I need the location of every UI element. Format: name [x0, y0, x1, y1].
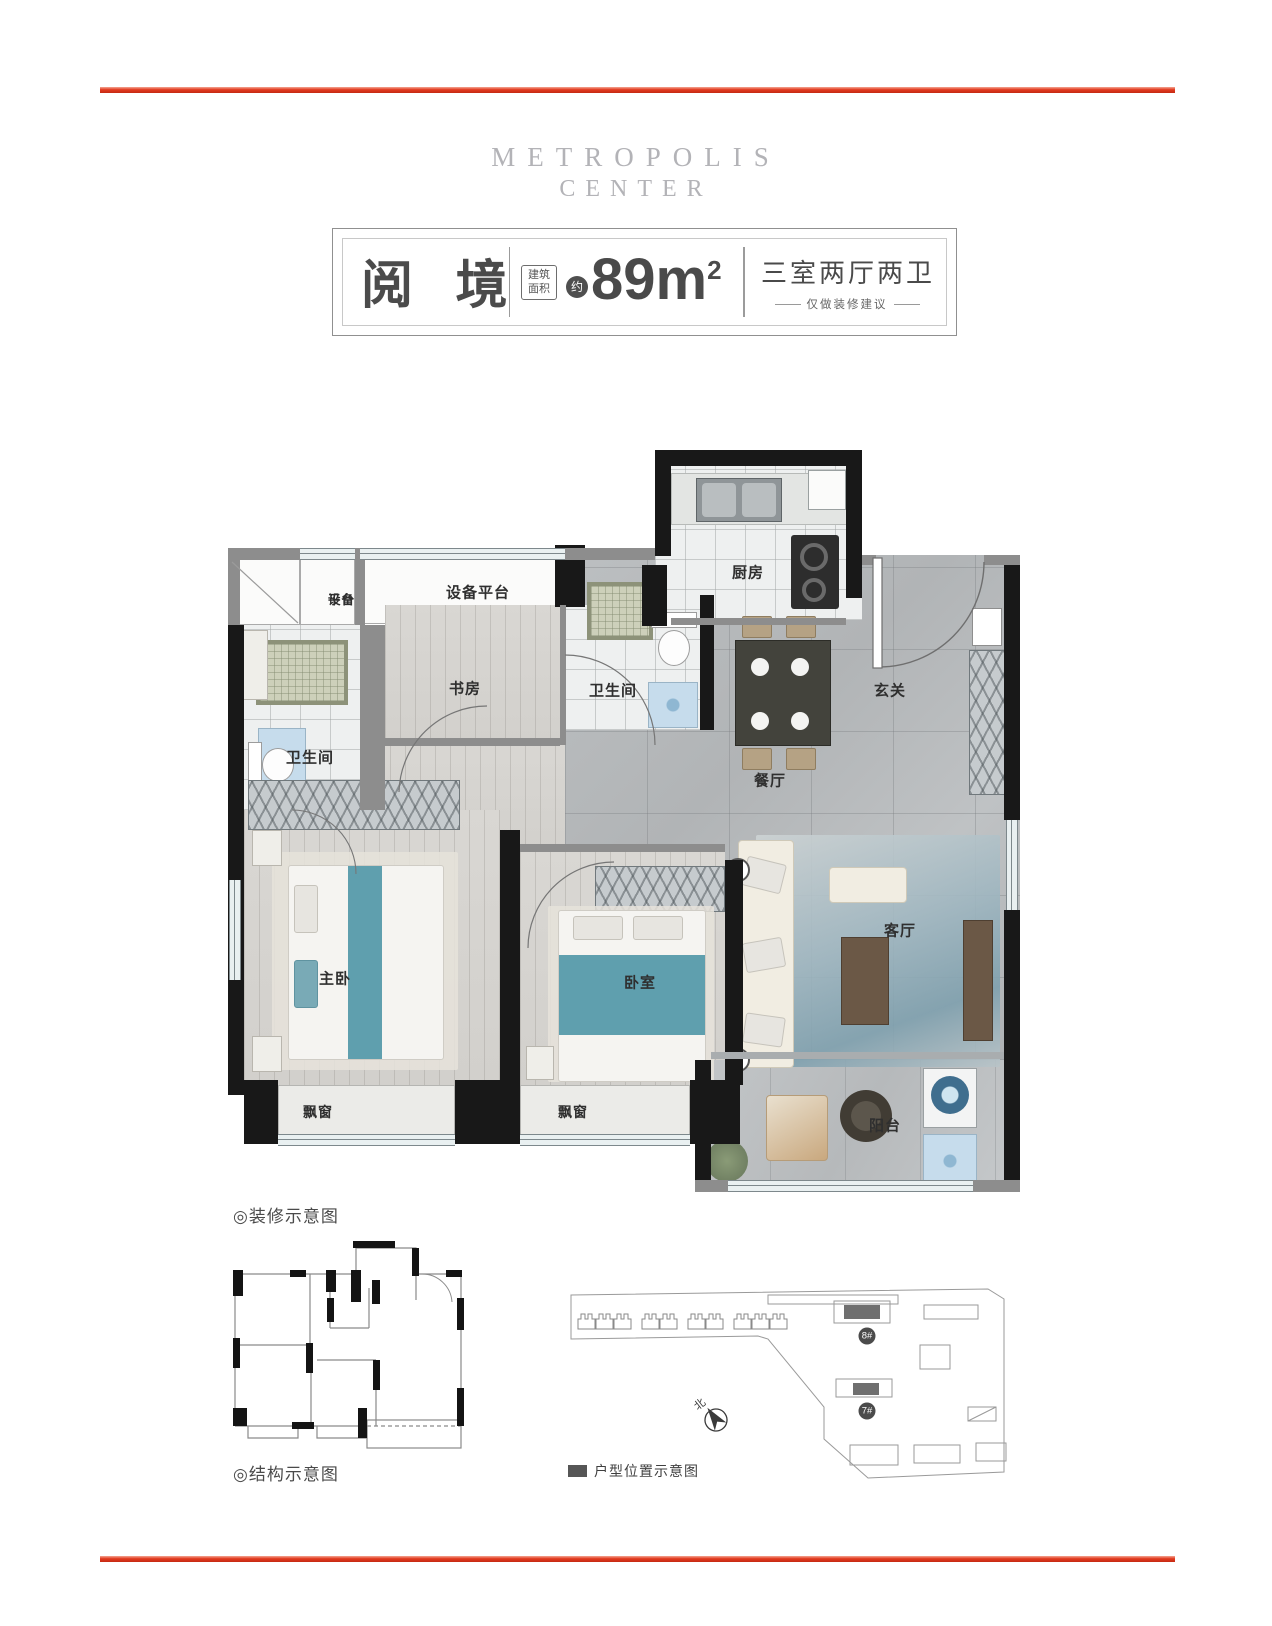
- wall-segment: [655, 450, 862, 466]
- burner-2: [802, 578, 826, 602]
- window-strip: [300, 548, 355, 560]
- wall-segment-gray: [520, 844, 725, 852]
- master-wardrobe: [248, 780, 460, 830]
- wall-segment: [655, 466, 671, 556]
- layout-note: 仅做装修建议: [761, 296, 933, 312]
- room-label-study: 书房: [449, 678, 481, 699]
- room-label-bath-top: 卫生间: [589, 680, 637, 701]
- title-card: 阅 境 建筑 面积 约 89m2 三室两厅两卫 仅做装修建议: [332, 228, 957, 336]
- plate: [751, 658, 769, 676]
- site-plan: [568, 1287, 1014, 1483]
- building-badge-8: 8#: [859, 1328, 876, 1345]
- brand-line-2: CENTER: [0, 176, 1272, 203]
- room-label-bath-left: 卫生间: [286, 747, 334, 768]
- bedroom-pillow: [573, 916, 623, 940]
- building-badge-7: 7#: [859, 1403, 876, 1420]
- window-strip: [520, 1134, 690, 1146]
- nightstand: [526, 1046, 554, 1080]
- bedroom-pillow: [633, 916, 683, 940]
- approx-circle: 约: [566, 276, 588, 298]
- sideboard: [829, 867, 907, 903]
- wall-segment-gray: [862, 555, 876, 565]
- room-label-equip-wide: 设备平台: [446, 582, 510, 603]
- shoe-cabinet: [972, 608, 1002, 646]
- vanity-left-bath: [242, 630, 268, 700]
- wall-segment: [1004, 1085, 1020, 1190]
- brand-logo: METROPOLIS CENTER: [0, 142, 1272, 203]
- area-type-badge: 建筑 面积: [521, 265, 557, 300]
- window-strip: [278, 1134, 455, 1146]
- plant: [706, 1140, 748, 1182]
- wall-segment: [642, 565, 667, 626]
- wall-segment: [244, 1080, 278, 1144]
- wall-segment: [500, 830, 520, 1085]
- wall-segment-gray: [565, 548, 655, 560]
- window-strip: [728, 1180, 973, 1192]
- nightstand: [252, 830, 282, 866]
- master-pillow: [294, 885, 318, 933]
- dining-table: [735, 640, 831, 746]
- wall-segment: [1004, 910, 1020, 1085]
- wall-segment-gray: [360, 625, 385, 810]
- wall-segment: [228, 625, 244, 1095]
- shower-left-bath: [256, 640, 348, 705]
- sliding-door-track: [711, 1052, 1004, 1059]
- wall-segment: [846, 450, 862, 598]
- room-label-kitchen: 厨房: [732, 562, 764, 583]
- brand-line-1: METROPOLIS: [0, 142, 1272, 173]
- room-label-dining: 餐厅: [754, 770, 786, 791]
- unit-name: 阅 境: [361, 243, 521, 318]
- washer-drum: [931, 1076, 969, 1114]
- divider: [743, 247, 745, 317]
- legend-text: 户型位置示意图: [594, 1461, 699, 1481]
- wall-segment-gray: [560, 605, 566, 745]
- wall-segment-gray: [228, 558, 240, 625]
- window-strip: [1006, 820, 1018, 910]
- window-strip: [229, 880, 241, 980]
- area-exponent: 2: [707, 255, 721, 285]
- nightstand: [252, 1036, 282, 1072]
- kitchen-cabinet: [808, 470, 846, 510]
- layout-text: 三室两厅两卫: [761, 253, 933, 290]
- top-red-rule: [100, 87, 1175, 93]
- plate: [791, 658, 809, 676]
- room-label-balcony: 阳台: [869, 1115, 901, 1136]
- wall-segment-gray: [385, 738, 560, 746]
- wall-segment: [455, 1080, 520, 1144]
- floorplan: 设备平台 设备平台 书房 卫生间 卫生间 厨房 玄关 餐厅 主卧 卧室 客厅 飘…: [228, 440, 1020, 1195]
- room-label-bay-2: 飘窗: [558, 1102, 588, 1122]
- master-pillow: [294, 960, 318, 1008]
- wall-segment: [1004, 558, 1020, 820]
- room-label-bay-1: 飘窗: [303, 1102, 333, 1122]
- wall-segment-gray: [984, 555, 1020, 565]
- poster-page: METROPOLIS CENTER 阅 境 建筑 面积 约 89m2 三室两厅两…: [0, 0, 1272, 1626]
- wall-segment-gray: [671, 618, 846, 625]
- burner-1: [800, 543, 828, 571]
- room-label-living: 客厅: [884, 920, 916, 941]
- sofa-pillow: [742, 1012, 786, 1047]
- dining-chair: [742, 748, 772, 770]
- room-label-master: 主卧: [319, 968, 351, 989]
- structure-caption: ◎结构示意图: [233, 1460, 339, 1485]
- wall-segment: [700, 595, 714, 730]
- wall-segment: [695, 1060, 711, 1190]
- divider: [509, 247, 510, 317]
- sink-basin-right: [742, 483, 776, 517]
- unit-location-legend: 户型位置示意图: [568, 1461, 699, 1481]
- floor-cushion: [766, 1095, 828, 1161]
- window-strip: [360, 548, 565, 560]
- area-badge-line-1: 建筑: [522, 268, 556, 282]
- shower-tray-top-bath: [648, 682, 698, 728]
- toilet-bowl-top: [658, 630, 690, 666]
- layout-block: 三室两厅两卫 仅做装修建议: [761, 253, 933, 312]
- plate: [791, 712, 809, 730]
- coffee-table: [841, 937, 889, 1025]
- decorated-plan-caption: ◎装修示意图: [233, 1202, 339, 1227]
- area-badge-line-2: 面积: [522, 282, 556, 296]
- sink-basin-left: [702, 483, 736, 517]
- legend-swatch: [568, 1465, 587, 1477]
- room-label-bedroom: 卧室: [624, 972, 656, 993]
- dining-chair: [786, 748, 816, 770]
- structure-diagram: [232, 1240, 464, 1450]
- tv-cabinet: [963, 920, 993, 1041]
- bottom-red-rule: [100, 1556, 1175, 1562]
- area-value: 89m2: [591, 246, 722, 313]
- plate: [751, 712, 769, 730]
- floor-study: [385, 605, 560, 745]
- room-label-foyer: 玄关: [874, 680, 906, 701]
- master-bed-runner: [348, 866, 382, 1059]
- bedroom-blanket: [559, 955, 705, 1035]
